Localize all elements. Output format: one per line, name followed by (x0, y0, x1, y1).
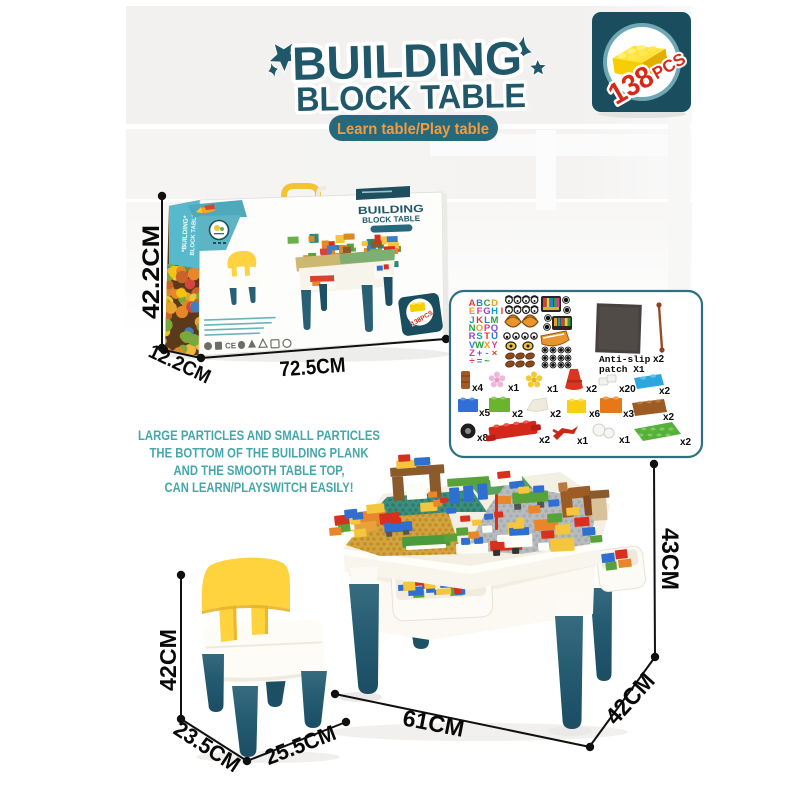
svg-text:÷: ÷ (469, 356, 474, 367)
svg-text:x20: x20 (619, 384, 636, 395)
svg-text:x2: x2 (659, 386, 671, 397)
svg-text:x1: x1 (619, 435, 631, 446)
svg-text:BLOCK TABLE: BLOCK TABLE (296, 77, 527, 119)
svg-text:LARGE PARTICLES AND SMALL PART: LARGE PARTICLES AND SMALL PARTICLES (138, 428, 380, 443)
svg-text:I: I (501, 306, 504, 317)
svg-text:x4: x4 (472, 383, 484, 394)
svg-text:x6: x6 (589, 409, 601, 420)
svg-text:CAN LEARN/PLAYSWITCH EASILY!: CAN LEARN/PLAYSWITCH EASILY! (165, 480, 354, 495)
svg-text:x2: x2 (550, 409, 562, 420)
svg-text:Learn table/Play table: Learn table/Play table (337, 121, 489, 138)
svg-text:x3: x3 (623, 409, 635, 420)
svg-text:CE: CE (225, 341, 237, 350)
svg-text:patch X1: patch X1 (599, 364, 645, 375)
svg-text:x2: x2 (653, 354, 665, 365)
svg-text:THE BOTTOM OF THE BUILDING PLA: THE BOTTOM OF THE BUILDING PLANK (150, 446, 369, 461)
svg-text:x2: x2 (586, 384, 598, 395)
svg-text:x1: x1 (508, 383, 520, 394)
svg-text:x2: x2 (680, 437, 692, 448)
svg-text:x5: x5 (479, 408, 491, 419)
svg-text:42CM: 42CM (155, 629, 181, 691)
svg-text:×: × (492, 348, 498, 359)
svg-text:x2: x2 (663, 412, 675, 423)
svg-text:43CM: 43CM (656, 528, 683, 590)
svg-text:x2: x2 (539, 435, 551, 446)
svg-text:=: = (477, 356, 483, 367)
svg-text:42.2CM: 42.2CM (138, 225, 165, 319)
svg-text:~: ~ (484, 356, 490, 367)
svg-text:x1: x1 (547, 384, 559, 395)
svg-text:AND THE SMOOTH TABLE TOP,: AND THE SMOOTH TABLE TOP, (174, 463, 345, 478)
svg-text:x2: x2 (512, 409, 524, 420)
svg-text:x1: x1 (577, 436, 589, 447)
svg-text:72.5CM: 72.5CM (279, 354, 346, 382)
